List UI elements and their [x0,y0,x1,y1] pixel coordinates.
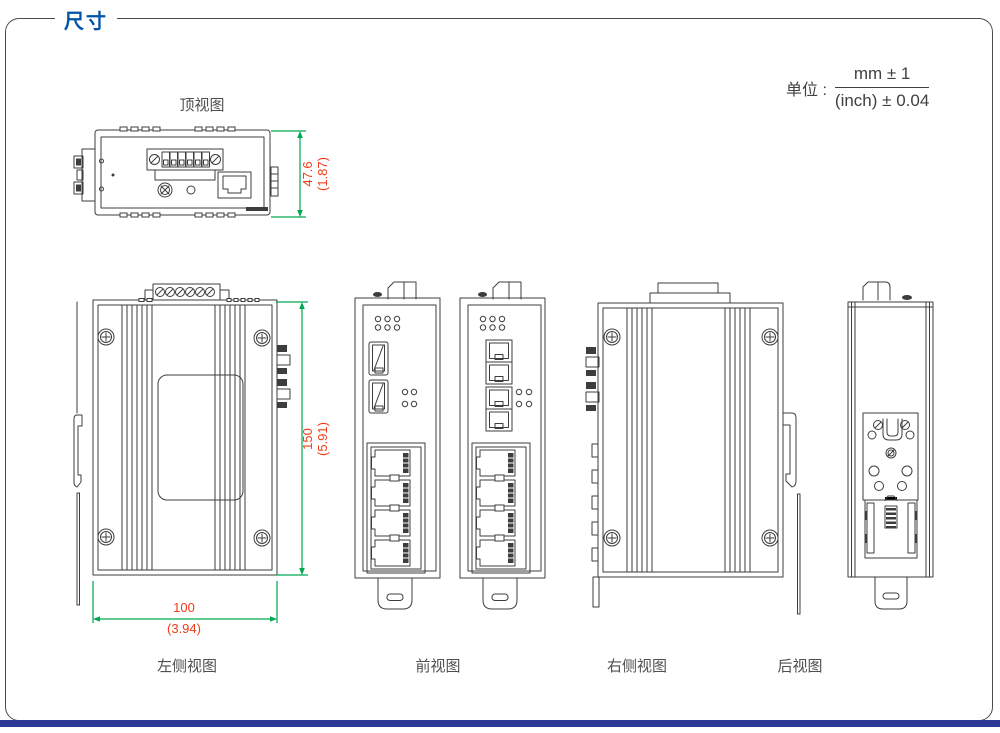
unit-numerator: mm ± 1 [835,64,929,88]
dimension-width-inch: (3.94) [134,622,234,637]
mounting-screw [604,530,620,546]
dimension-height-inch: (5.91) [316,422,331,456]
terminal-block [145,284,229,300]
sfp-port [369,342,388,375]
rj45-port-stack [367,443,425,573]
sfp-port [369,380,388,413]
dimension-depth-inch: (1.87) [316,157,331,191]
terminal-block [147,149,223,180]
mounting-screw [98,529,114,545]
dimension-depth-mm: 47.6 [301,161,316,186]
din-rail-clip [863,282,912,300]
unit-label: 单位 : [786,76,827,100]
right-view-drawing [578,276,813,621]
reset-hole [187,186,195,194]
rj45-port [218,172,251,198]
side-connector-profile [271,167,278,196]
led-indicators [402,389,416,406]
rj45-port-stack [472,443,530,573]
fiber-port [486,362,512,384]
mounting-screw [762,530,778,546]
bottom-tab [378,578,412,609]
bottom-tab [483,578,517,609]
page-title: 尺寸 [55,5,117,34]
sfp-cage-profile [586,347,599,411]
units-note: 单位 : mm ± 1 (inch) ± 0.04 [786,64,929,111]
footer-bar [0,720,1000,727]
right-view-label: 右侧视图 [577,655,697,676]
din-mount-plate [863,413,918,501]
port-side-profiles [592,444,598,561]
mounting-screw [254,530,270,546]
mounting-screw [98,329,114,345]
din-rail-clip [478,282,521,299]
mounting-screw [762,329,778,345]
heatsink-fins [122,305,245,570]
front-view-label: 前视图 [378,655,498,676]
heatsink-fins [627,308,750,572]
terminal-block [650,283,730,303]
front-view-drawing-fiber [453,278,553,618]
unit-denominator: (inch) ± 0.04 [835,88,929,111]
sfp-cage-profile [277,345,290,408]
left-view-drawing [65,276,310,616]
led-indicators [516,389,531,406]
rear-view-drawing [838,276,953,621]
unit-fraction: mm ± 1 (inch) ± 0.04 [835,64,929,111]
led-indicators [375,316,399,330]
bottom-tab-profile [593,577,599,607]
mounting-screw [604,329,620,345]
fiber-port [486,340,512,362]
bottom-tab [875,577,907,609]
mounting-screw [254,330,270,346]
fiber-port [486,387,512,409]
left-view-label: 左侧视图 [127,655,247,676]
dimension-depth: 47.6 (1.87) [300,129,332,219]
din-rail-clip [373,282,416,299]
ground-screw [158,183,172,197]
fiber-port [486,409,512,431]
top-view-label: 顶视图 [142,94,262,115]
din-rail-clip [74,149,95,201]
led-indicators [480,316,504,330]
din-rail-bracket [74,302,82,605]
front-view-drawing-sfp [348,278,448,618]
din-rail-bracket [783,413,800,614]
top-view-drawing [70,123,285,223]
rear-view-label: 后视图 [740,655,860,676]
spring-clip [865,500,918,558]
